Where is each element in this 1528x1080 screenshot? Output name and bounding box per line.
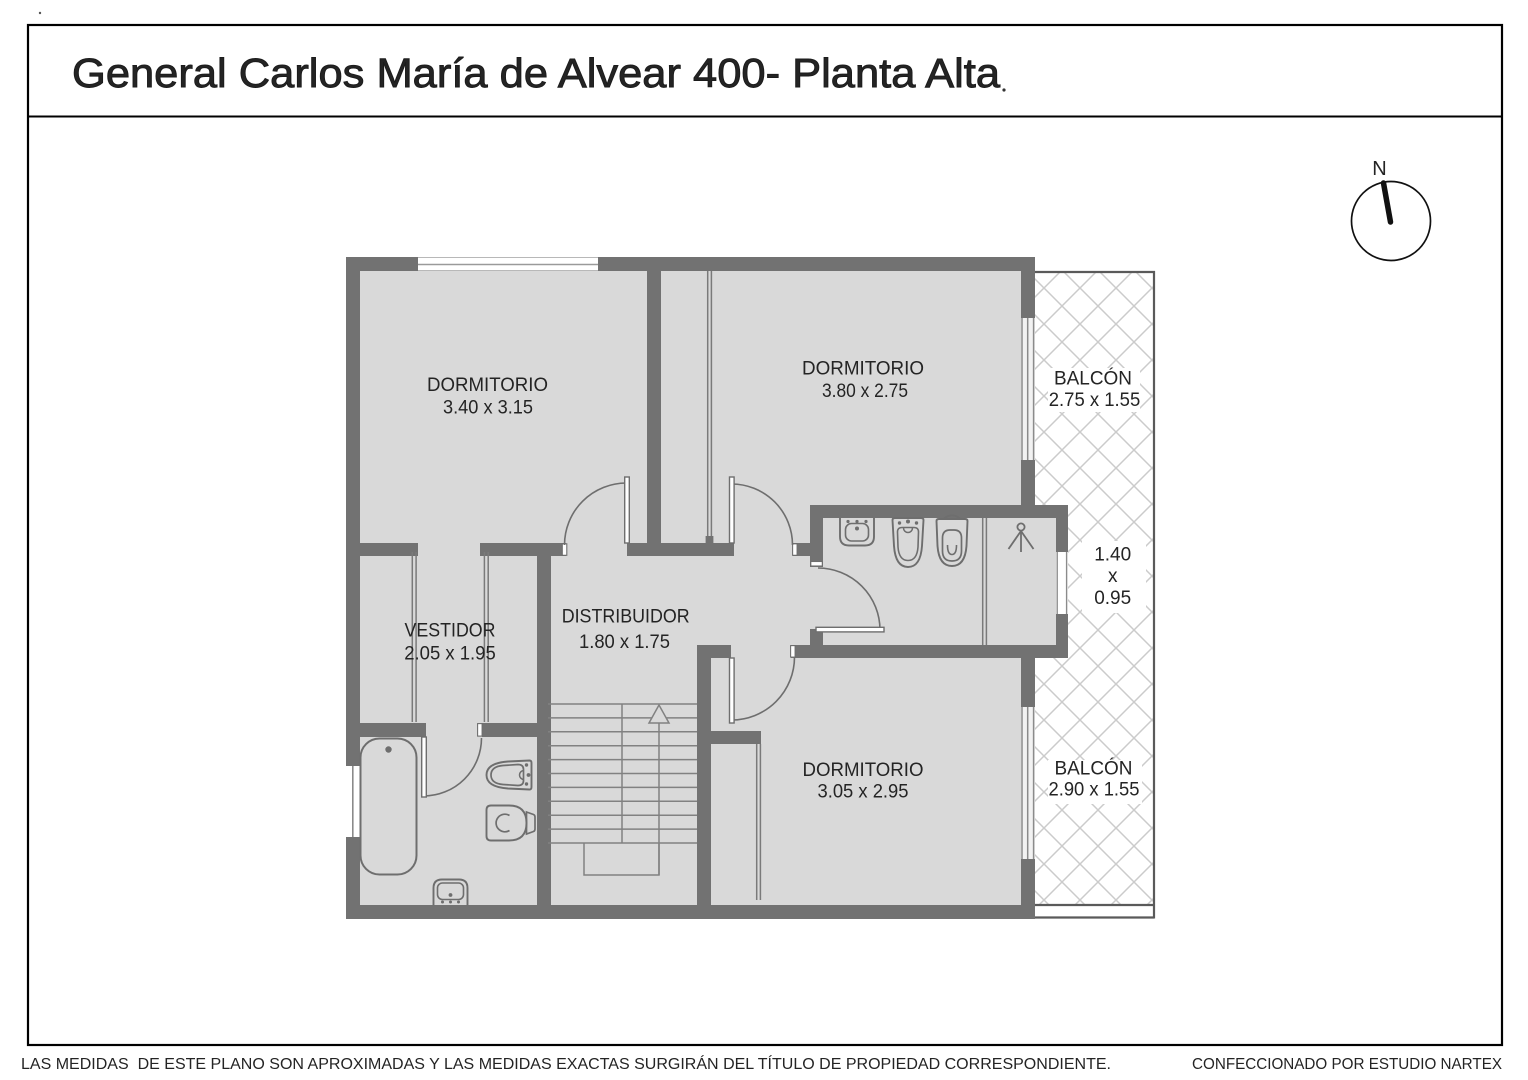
- svg-text:2.75 x 1.55: 2.75 x 1.55: [1049, 390, 1141, 411]
- svg-text:x: x: [1108, 566, 1118, 587]
- svg-text:DORMITORIO: DORMITORIO: [803, 760, 924, 781]
- svg-text:DORMITORIO: DORMITORIO: [427, 375, 548, 396]
- svg-text:0.95: 0.95: [1094, 588, 1131, 609]
- svg-text:BALCÓN: BALCÓN: [1055, 758, 1133, 780]
- svg-text:BALCÓN: BALCÓN: [1054, 368, 1132, 390]
- svg-text:DORMITORIO: DORMITORIO: [802, 359, 924, 380]
- svg-text:DISTRIBUIDOR: DISTRIBUIDOR: [562, 607, 690, 628]
- svg-text:1.40: 1.40: [1094, 545, 1131, 566]
- svg-text:3.40 x 3.15: 3.40 x 3.15: [443, 398, 533, 419]
- svg-text:CONFECCIONADO POR ESTUDIO NART: CONFECCIONADO POR ESTUDIO NARTEX: [1192, 1056, 1502, 1073]
- svg-text:2.05 x 1.95: 2.05 x 1.95: [404, 644, 496, 665]
- svg-text:1.80 x 1.75: 1.80 x 1.75: [579, 632, 670, 653]
- svg-text:3.80 x 2.75: 3.80 x 2.75: [822, 381, 908, 402]
- svg-text:2.90 x 1.55: 2.90 x 1.55: [1049, 780, 1140, 801]
- svg-text:LAS MEDIDAS DE ESTE PLANO SON: LAS MEDIDAS DE ESTE PLANO SON APROXIMADA…: [21, 1054, 1111, 1073]
- svg-text:General Carlos María de Alvear: General Carlos María de Alvear 400- Plan…: [72, 50, 1000, 96]
- svg-text:3.05 x 2.95: 3.05 x 2.95: [818, 782, 909, 803]
- svg-text:N: N: [1372, 158, 1386, 180]
- svg-text:VESTIDOR: VESTIDOR: [405, 621, 496, 642]
